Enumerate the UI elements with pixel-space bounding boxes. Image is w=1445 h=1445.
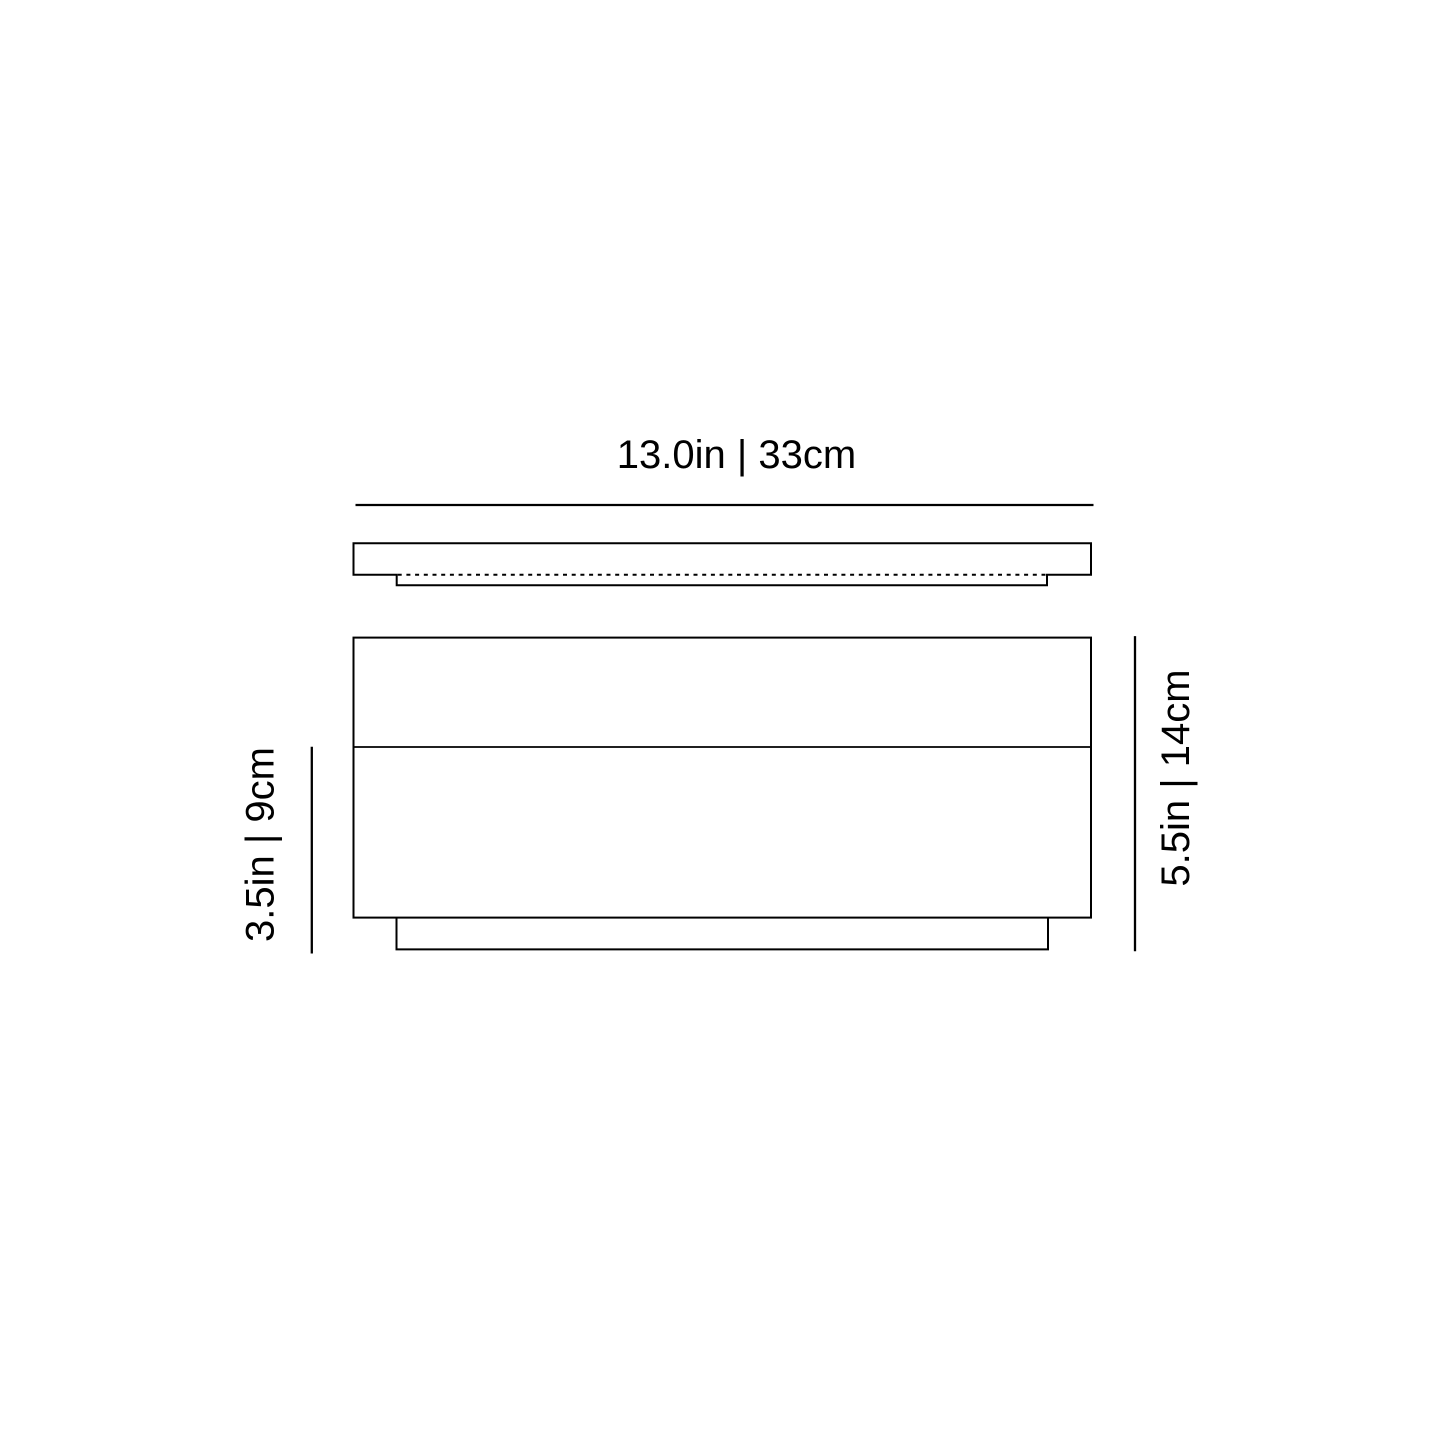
svg-text:3.5in | 9cm: 3.5in | 9cm	[238, 747, 282, 942]
svg-text:13.0in | 33cm: 13.0in | 33cm	[617, 433, 856, 477]
svg-text:5.5in | 14cm: 5.5in | 14cm	[1154, 669, 1198, 886]
